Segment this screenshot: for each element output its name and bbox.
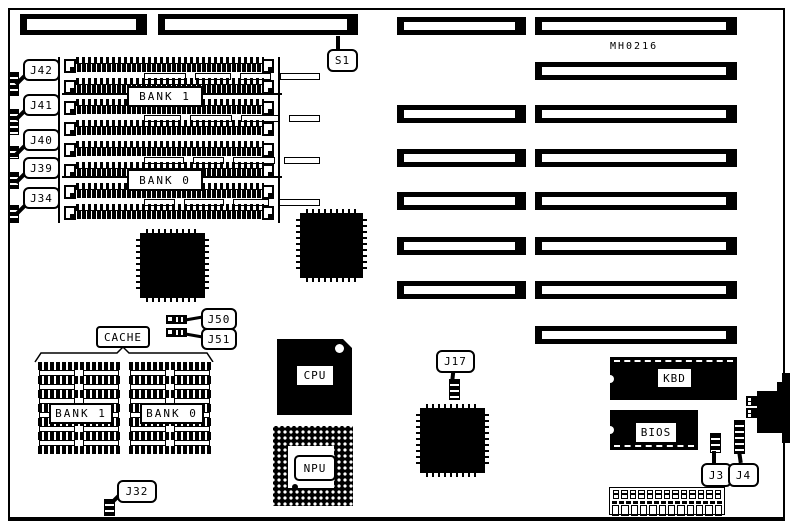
callout-j4: J4	[728, 463, 759, 487]
motherboard-diagram: S1 MH0216	[0, 0, 791, 527]
socket-clip	[64, 185, 76, 199]
bios-label: BIOS	[635, 422, 677, 443]
jumper-j4	[734, 420, 745, 454]
expansion-slot	[535, 105, 737, 123]
expansion-slot	[535, 62, 737, 80]
simm-socket-row	[76, 141, 264, 156]
dram-bank1-label: BANK 1	[127, 86, 203, 107]
callout-s1: S1	[327, 49, 358, 72]
callout-j50: J50	[201, 308, 237, 330]
expansion-slot	[397, 105, 526, 123]
keyboard-connector	[746, 373, 791, 443]
callout-j40: J40	[23, 129, 60, 151]
callout-j42: J42	[23, 59, 60, 81]
simm-socket-row	[76, 204, 264, 219]
dram-bank0-label: BANK 0	[127, 169, 203, 191]
socket-clip	[64, 122, 76, 136]
qfp-chip	[300, 213, 363, 278]
s1-label: S1	[335, 54, 350, 67]
expansion-slot	[397, 192, 526, 210]
part-number: MH0216	[610, 41, 658, 52]
cpu-corner-notch	[343, 339, 352, 348]
cache-bank0-label: BANK 0	[140, 403, 204, 424]
expansion-slot	[535, 237, 737, 255]
kbd-chip-notch	[606, 375, 614, 383]
jumper-j50	[166, 315, 187, 324]
expansion-slot	[397, 237, 526, 255]
expansion-slot	[535, 149, 737, 167]
npu-label: NPU	[294, 455, 336, 481]
npu-socket: NPU	[273, 426, 353, 506]
simm-socket-row	[76, 120, 264, 135]
bios-chip: BIOS	[610, 410, 698, 450]
expansion-slot	[535, 192, 737, 210]
power-connector	[609, 487, 725, 515]
cache-label: CACHE	[96, 326, 150, 348]
socket-clip	[64, 206, 76, 220]
qfp-chip	[420, 408, 485, 473]
socket-clip	[64, 59, 76, 73]
cache-bank1-label: BANK 1	[49, 403, 113, 424]
callout-j51: J51	[201, 328, 237, 350]
expansion-slot	[535, 281, 737, 299]
simm-socket-row	[76, 57, 264, 72]
expansion-slot	[158, 14, 358, 35]
callout-j32: J32	[117, 480, 157, 503]
expansion-slot	[535, 17, 737, 35]
kbd-chip: KBD	[610, 357, 737, 400]
socket-clip	[64, 143, 76, 157]
cpu-label: CPU	[296, 365, 334, 386]
expansion-slot	[535, 326, 737, 344]
callout-j17: J17	[436, 350, 475, 373]
jumper-j51	[166, 328, 187, 337]
cpu-pin1-dot	[335, 344, 344, 353]
socket-clip	[64, 101, 76, 115]
callout-j41: J41	[23, 94, 60, 116]
jumper-j41	[9, 109, 19, 135]
cpu-chip: CPU	[277, 339, 352, 415]
qfp-chip	[140, 233, 205, 298]
memory-block: BANK 1 BANK 0	[62, 57, 282, 223]
expansion-slot	[397, 149, 526, 167]
jumper-j3	[710, 433, 721, 453]
bios-chip-notch	[606, 426, 614, 434]
callout-j34: J34	[23, 187, 60, 209]
expansion-slot	[397, 17, 526, 35]
socket-clip	[64, 80, 76, 94]
expansion-slot	[20, 14, 147, 35]
callout-j39: J39	[23, 157, 60, 179]
kbd-label: KBD	[657, 368, 692, 388]
npu-pin1-dot	[292, 484, 298, 490]
jumper-j17	[449, 379, 460, 400]
expansion-slot	[397, 281, 526, 299]
